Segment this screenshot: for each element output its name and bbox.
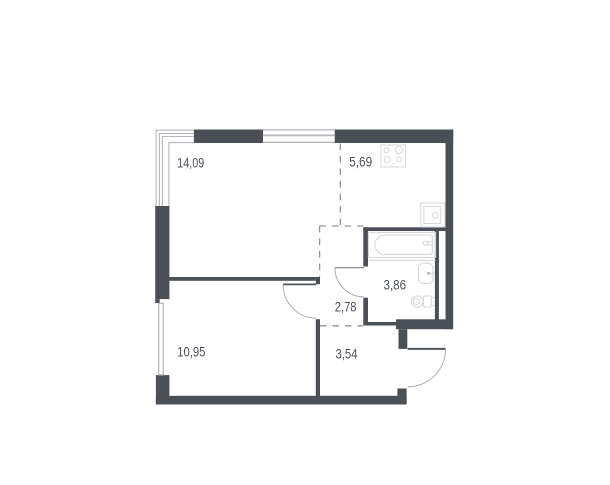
svg-text:3,86: 3,86	[384, 278, 407, 293]
svg-text:2,78: 2,78	[335, 300, 357, 315]
svg-text:10,95: 10,95	[177, 344, 205, 359]
svg-text:14,09: 14,09	[177, 155, 204, 170]
svg-text:3,54: 3,54	[336, 346, 358, 361]
svg-text:5,69: 5,69	[349, 154, 372, 169]
